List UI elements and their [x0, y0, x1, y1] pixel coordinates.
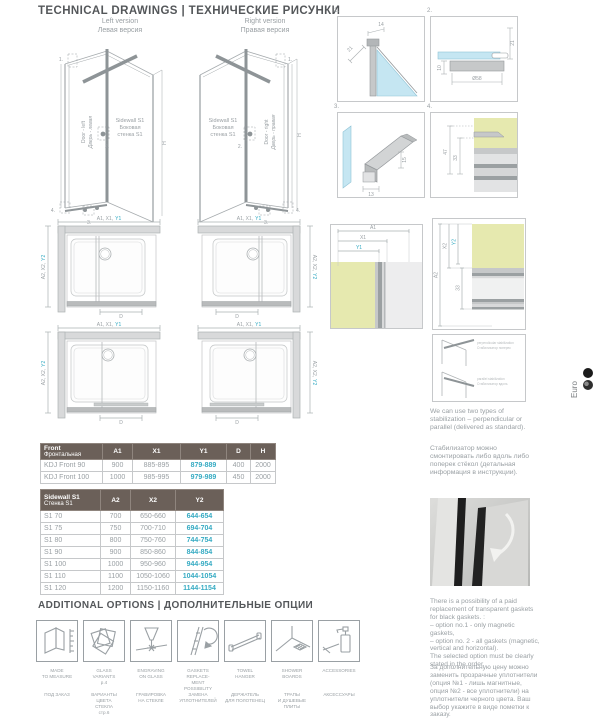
- detail-1-top-corner-profile: 14 21: [337, 16, 425, 102]
- stab-option1-ru: Стабилизатор поперек: [477, 346, 511, 350]
- dim-x1: X1: [360, 235, 366, 241]
- option-label-ru: ЗАМЕНА УПЛОТНИТЕЛЕЙ: [179, 692, 216, 704]
- detail-4-number: 4.: [427, 104, 432, 110]
- option-label-ru: ДЕРЖАТЕЛЬ ДЛЯ ПОЛОТЕНЕЦ: [225, 692, 265, 704]
- stabilizer-bar: [83, 56, 137, 82]
- stabilization-diagram: perpendicular stabilization Стабилизатор…: [432, 334, 527, 402]
- option-label-ru: ПОД ЗАКАЗ: [44, 692, 69, 698]
- table-row: KDJ Front 90 900 885-895 879-889 400 200…: [41, 460, 276, 472]
- option-label-ru: ГРАВИРОВКА НА СТЕКЛЕ: [136, 692, 166, 704]
- plan-right-open: A1, X1,Y1 A2, X2,Y2 D: [180, 320, 320, 425]
- dim-14: 14: [378, 22, 384, 28]
- stabilizer-bar: [216, 56, 270, 82]
- sidewall-title-ru: Стенка S1: [44, 501, 98, 507]
- page-title: TECHNICAL DRAWINGS | ТЕХНИЧЕСКИЕ РИСУНКИ: [38, 5, 340, 17]
- plan-left-open: A1, X1,Y1 A2, X2,Y2 D: [38, 320, 178, 425]
- stabilization-caption-en: We can use two types of stabilization – …: [430, 408, 540, 432]
- stab-option1-en: perpendicular stabilization: [477, 341, 514, 345]
- dim-a1: A1: [370, 225, 376, 231]
- sidewall-label-ru1: Боковая: [119, 125, 140, 131]
- col-a1: A1: [103, 444, 133, 460]
- wall-right: [293, 332, 300, 418]
- option-shower-boards: SHOWER BOARDS ТРАПЫ И ДУШЕВЫЕ ПЛИТЫ: [271, 620, 313, 716]
- plan-side-dim: A2, X2,Y2: [311, 255, 317, 280]
- option-label-en: MADE TO MEASURE: [42, 668, 72, 692]
- open-door-panel: [210, 403, 264, 406]
- isometric-drawing-left: 1. 2. 4. 3. Door - left Дверь - левая Si…: [35, 30, 175, 225]
- euro-dot-icon: [583, 368, 593, 378]
- plan-top-dim: A1, X1,Y1: [97, 216, 122, 222]
- sidewall-label-ru2: стенка S1: [210, 132, 235, 138]
- table-row: S1 1001000950-960944-954: [41, 559, 224, 571]
- wall-section: [331, 262, 377, 328]
- plan-side-dim: A2, X2,Y2: [311, 361, 317, 386]
- door-right-label-en: Door - right: [264, 119, 270, 145]
- front-table-header: FrontФронтальная A1 X1 Y1 D H: [41, 444, 276, 460]
- knob-body: [450, 61, 504, 71]
- col-y1: Y1: [181, 444, 227, 460]
- door-left-label-ru: Дверь - левая: [88, 116, 94, 150]
- sidewall-glass: [67, 408, 156, 413]
- col-x2: X2: [131, 490, 176, 511]
- col-a2: A2: [101, 490, 131, 511]
- height-dim-label: H: [162, 141, 168, 145]
- wall-top: [58, 332, 160, 339]
- ref-2: 2.: [105, 144, 109, 150]
- col-x1: X1: [133, 444, 181, 460]
- option-label-en: ACCESSORIES: [322, 668, 355, 692]
- accessories-icon: [319, 621, 359, 661]
- model-name: KDJ Front 90: [41, 460, 103, 472]
- plan-side-dim: A2, X2,Y2: [41, 361, 47, 386]
- gasket-note-en: There is a possibility of a paid replace…: [430, 598, 540, 669]
- gasket-photo: [430, 498, 530, 586]
- sidewall-label-ru1: Боковая: [212, 125, 233, 131]
- wall-left: [58, 332, 65, 418]
- door-handle-knob: [101, 132, 106, 137]
- plan-d-dim: D: [235, 314, 239, 319]
- engraving-icon: [131, 621, 171, 661]
- sidewall-glass: [202, 408, 291, 413]
- dim-21: 21: [510, 40, 516, 46]
- stabilization-caption-ru: Стабилизатор можно смонтировать либо вдо…: [430, 445, 540, 477]
- gasket-note-ru: За дополнительную цену можно заменить пр…: [430, 664, 540, 719]
- dim-13: 13: [368, 192, 374, 198]
- option-label-en: ENGRAVING ON GLASS: [137, 668, 164, 692]
- sidewall-label-en: Sidewall S1: [209, 118, 238, 124]
- dim-33: 33: [456, 285, 462, 291]
- detail-2-knob-section: Ø58 21 10: [430, 16, 518, 102]
- stab-option2-en: parallel stabilization: [477, 377, 505, 381]
- open-door-panel: [94, 403, 148, 406]
- option-label-en: TOWEL HANGER: [235, 668, 255, 692]
- wall-top: [198, 226, 300, 233]
- made-to-measure-icon: [37, 621, 77, 661]
- dim-y2: Y2: [452, 239, 458, 245]
- option-accessories: ACCESSORIES АКСЕССУАРЫ: [318, 620, 360, 716]
- table-row: S1 75750700-710694-704: [41, 523, 224, 535]
- table-row: S1 90900850-860844-854: [41, 547, 224, 559]
- wall-right: [293, 226, 300, 312]
- measure-diagram-front: A1 X1 Y1: [330, 220, 425, 330]
- dim-33: 33: [453, 155, 459, 161]
- plan-left-closed: A1, X1,Y1 A2, X2,Y2 D: [38, 214, 178, 319]
- dim-15: 15: [402, 157, 408, 163]
- height-dim-label: H: [297, 133, 303, 137]
- option-label-ru: ТРАПЫ И ДУШЕВЫЕ ПЛИТЫ: [278, 692, 306, 710]
- table-row: S1 70700650-660644-654: [41, 511, 224, 523]
- detail-3-number: 3.: [334, 104, 339, 110]
- wall-top: [198, 332, 300, 339]
- dim-47: 47: [443, 149, 449, 155]
- plan-d-dim: D: [235, 420, 239, 425]
- plan-top-dim: A1, X1,Y1: [237, 322, 262, 328]
- euro-logo-icon: [583, 380, 593, 390]
- front-title-en: Front: [44, 445, 61, 452]
- plan-d-dim: D: [119, 314, 123, 319]
- plan-d-dim: D: [119, 420, 123, 425]
- shower-tray: [71, 239, 145, 296]
- detail-3-bottom-sill-profile: 13 15: [337, 112, 425, 198]
- dim-diameter-58: Ø58: [472, 76, 482, 82]
- gaskets-replacement-icon: [178, 621, 218, 661]
- option-sub-ru: стр.6: [99, 710, 110, 715]
- wall-left: [58, 226, 65, 312]
- sidewall-title-en: Sidewall S1: [44, 494, 80, 501]
- detail-1-number: 1.: [334, 8, 339, 14]
- sidewall-glass: [202, 302, 291, 307]
- col-y2: Y2: [176, 490, 224, 511]
- sidewall-label-en: Sidewall S1: [116, 118, 145, 124]
- option-label-en: GLASS VARIANTSp.4: [93, 668, 116, 692]
- option-label-en: GASKETS REPLACE- MENT POSSIBILITY: [177, 668, 219, 692]
- door-handle-knob: [248, 132, 253, 137]
- sidewall-table-title: Sidewall S1Стенка S1: [41, 490, 101, 511]
- options-row: MADE TO MEASURE ПОД ЗАКАЗ GLASS VARIANTS…: [36, 620, 360, 716]
- catalog-page: { "header": {"title": "TECHNICAL DRAWING…: [0, 0, 602, 720]
- sidewall-label-ru2: стенка S1: [117, 132, 142, 138]
- dim-x2: X2: [443, 243, 449, 249]
- detail-2-number: 2.: [427, 8, 432, 14]
- model-name: KDJ Front 100: [41, 472, 103, 484]
- shower-tray: [213, 239, 287, 296]
- plan-right-closed: A1, X1,Y1 A2, X2,Y2 D: [180, 214, 320, 319]
- wall-top: [58, 226, 160, 233]
- dim-y1: Y1: [356, 245, 362, 251]
- euro-tab-label: Euro: [570, 368, 579, 398]
- sidewall-table: Sidewall S1Стенка S1 A2 X2 Y2 S1 7070065…: [40, 489, 224, 595]
- stab-option2-ru: Стабилизатор вдоль: [477, 382, 508, 386]
- plan-top-dim: A1, X1,Y1: [237, 216, 262, 222]
- table-row: KDJ Front 100 1000 985-995 979-989 450 2…: [41, 472, 276, 484]
- col-d: D: [227, 444, 251, 460]
- plan-top-dim: A1, X1,Y1: [97, 322, 122, 328]
- col-h: H: [251, 444, 276, 460]
- door-right-label-ru: Дверь - правая: [271, 114, 277, 150]
- shower-boards-icon: [272, 621, 312, 661]
- option-glass-variants: GLASS VARIANTSp.4 ВАРИАНТЫ ЦВЕТА СТЕКЛАс…: [83, 620, 125, 716]
- option-label-ru: ВАРИАНТЫ ЦВЕТА СТЕКЛАстр.6: [83, 692, 125, 716]
- option-made-to-measure: MADE TO MEASURE ПОД ЗАКАЗ: [36, 620, 78, 716]
- sidewall-glass: [67, 302, 156, 307]
- option-label-ru: АКСЕССУАРЫ: [323, 692, 354, 698]
- right-version-en: Right version: [215, 18, 315, 27]
- isometric-drawing-right: 1. 2. 4. 3. Sidewall S1 Боковая стенка S…: [178, 30, 318, 225]
- table-row: S1 12012001150-11601144-1154: [41, 583, 224, 595]
- option-label-en: SHOWER BOARDS: [282, 668, 303, 692]
- wall-section: [472, 224, 524, 268]
- door-left-label-en: Door - left: [81, 120, 87, 143]
- front-title-ru: Фронтальная: [44, 452, 100, 458]
- option-towel-hanger: TOWEL HANGER ДЕРЖАТЕЛЬ ДЛЯ ПОЛОТЕНЕЦ: [224, 620, 266, 716]
- ref-1: 1.: [288, 57, 292, 63]
- glass-panel: [438, 52, 500, 59]
- left-version-en: Left version: [70, 18, 170, 27]
- glass-variants-icon: [84, 621, 124, 661]
- option-engraving: ENGRAVING ON GLASS ГРАВИРОВКА НА СТЕКЛЕ: [130, 620, 172, 716]
- plan-side-dim: A2, X2,Y2: [41, 255, 47, 280]
- sidewall-table-header: Sidewall S1Стенка S1 A2 X2 Y2: [41, 490, 224, 511]
- front-table: FrontФронтальная A1 X1 Y1 D H KDJ Front …: [40, 443, 276, 484]
- table-row: S1 80800750-760744-754: [41, 535, 224, 547]
- table-row: S1 11011001050-10601044-1054: [41, 571, 224, 583]
- ref-1: 1.: [59, 57, 63, 63]
- dim-a2: A2: [434, 272, 440, 278]
- towel-hanger-icon: [225, 621, 265, 661]
- measure-diagram-side: A2 X2 Y2 33: [432, 218, 527, 330]
- options-title: ADDITIONAL OPTIONS | ДОПОЛНИТЕЛЬНЫЕ ОПЦИ…: [38, 600, 313, 611]
- option-gaskets-replacement: GASKETS REPLACE- MENT POSSIBILITY ЗАМЕНА…: [177, 620, 219, 716]
- dim-10: 10: [437, 65, 443, 71]
- glass-panel: [343, 126, 351, 188]
- detail-4-wall-profile: 47 33: [430, 112, 518, 198]
- option-sub-en: p.4: [101, 680, 107, 685]
- front-table-title: FrontФронтальная: [41, 444, 103, 460]
- ref-2: 2.: [238, 144, 242, 150]
- gasket-photo-graphic: [430, 498, 530, 586]
